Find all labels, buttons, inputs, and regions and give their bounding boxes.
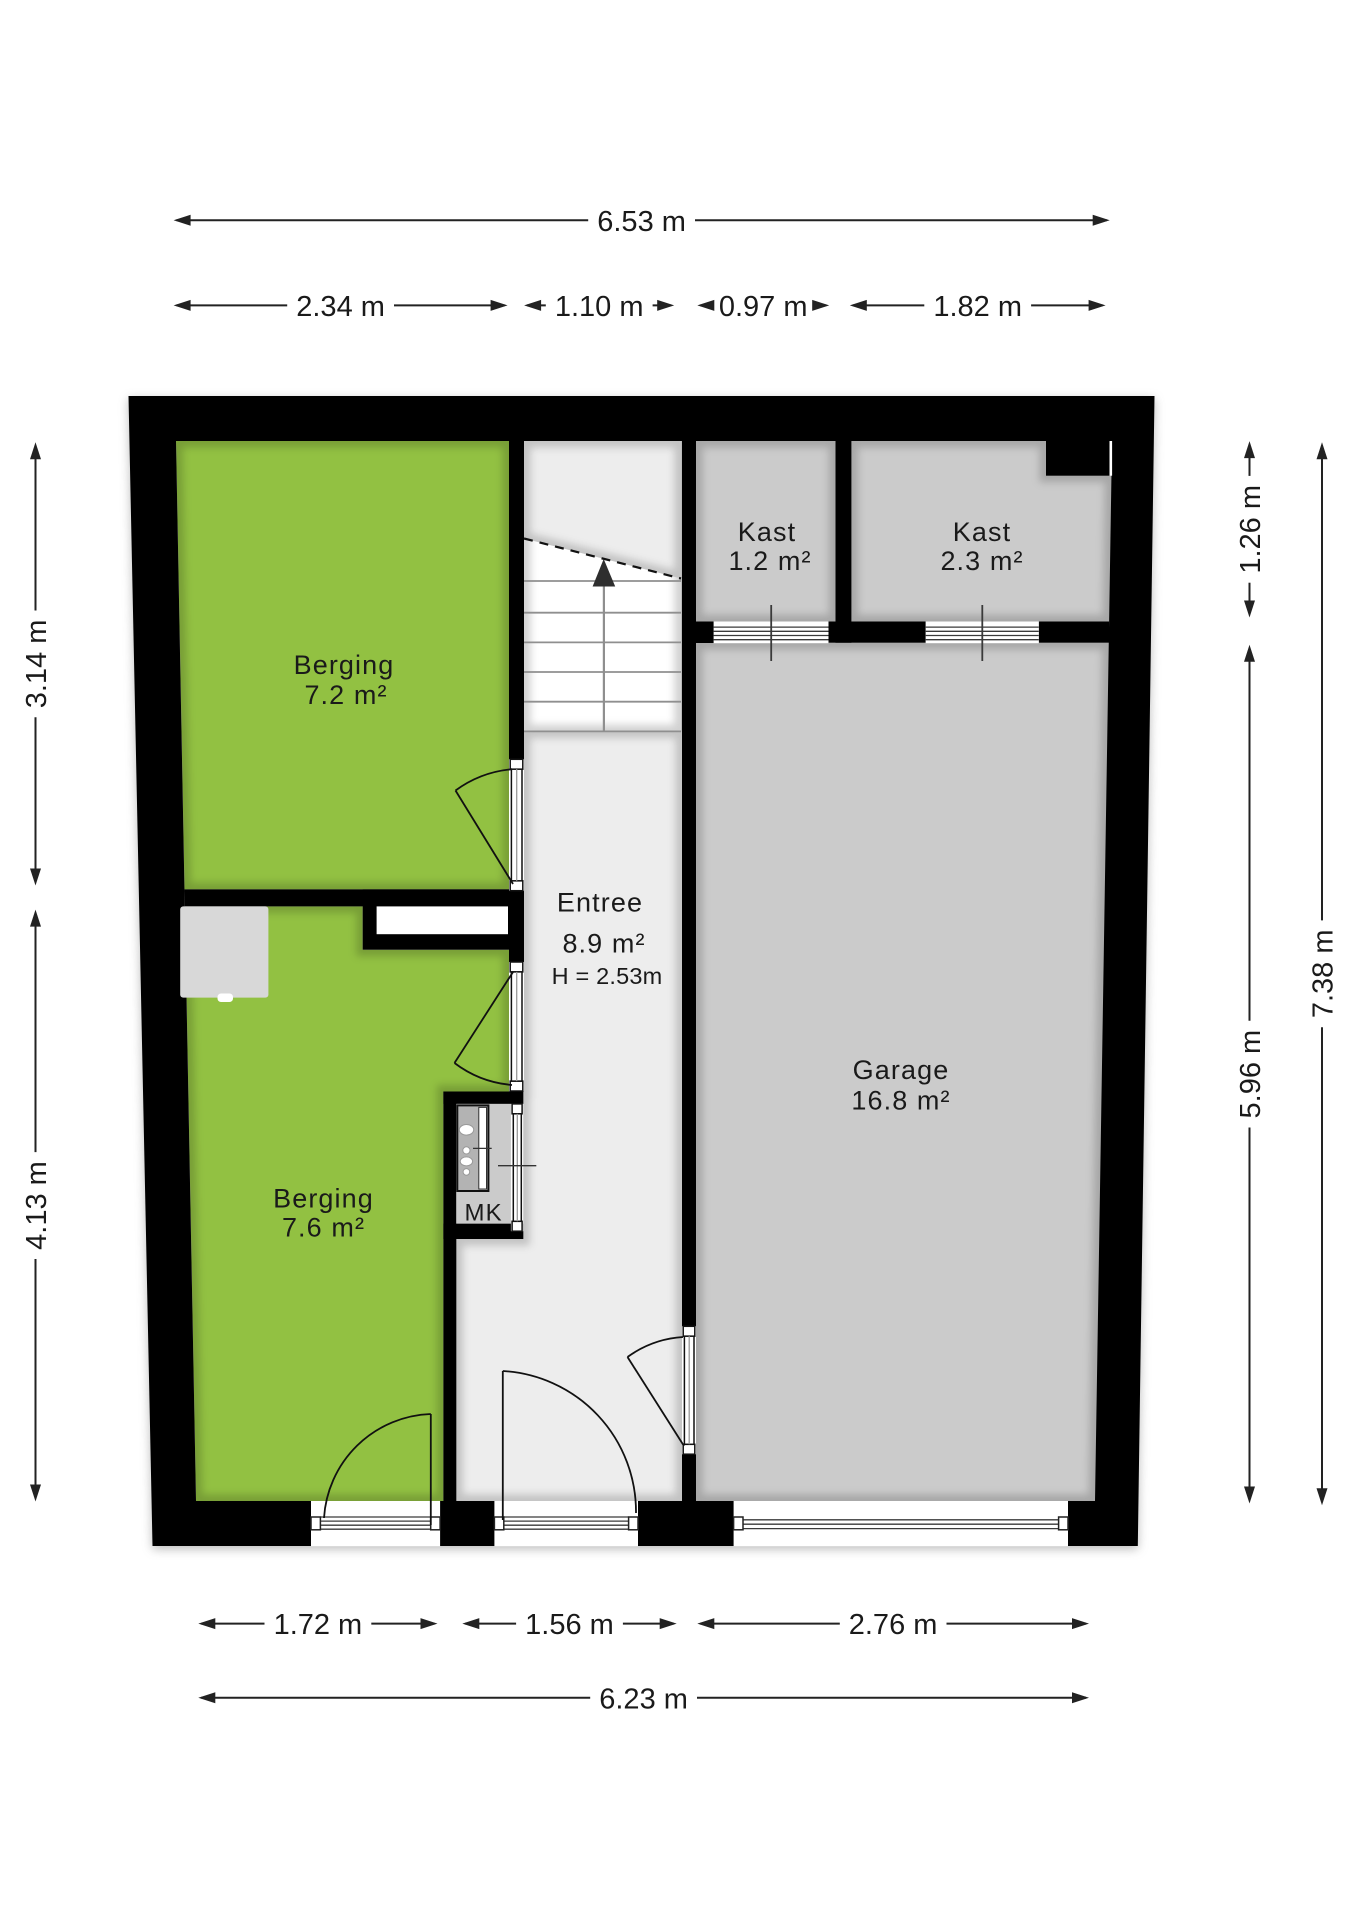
svg-text:7.2 m²: 7.2 m²: [304, 680, 387, 710]
svg-text:7.38 m: 7.38 m: [1308, 929, 1340, 1018]
svg-text:2.76 m: 2.76 m: [849, 1609, 938, 1641]
svg-text:1.82 m: 1.82 m: [933, 291, 1022, 323]
svg-text:2.3 m²: 2.3 m²: [940, 546, 1023, 576]
svg-text:7.6 m²: 7.6 m²: [282, 1213, 365, 1243]
svg-text:1.2 m²: 1.2 m²: [728, 546, 811, 576]
svg-text:16.8 m²: 16.8 m²: [851, 1086, 950, 1116]
svg-text:4.13 m: 4.13 m: [21, 1161, 53, 1250]
svg-text:3.14 m: 3.14 m: [21, 620, 53, 709]
svg-text:1.72 m: 1.72 m: [274, 1609, 363, 1641]
svg-text:1.10 m: 1.10 m: [555, 291, 644, 323]
svg-text:8.9 m²: 8.9 m²: [562, 929, 645, 959]
svg-text:Kast: Kast: [738, 517, 796, 547]
svg-text:5.96 m: 5.96 m: [1235, 1030, 1267, 1119]
svg-text:0.97 m: 0.97 m: [719, 291, 808, 323]
svg-text:Entree: Entree: [557, 887, 643, 917]
svg-text:1.26 m: 1.26 m: [1235, 485, 1267, 574]
svg-text:Berging: Berging: [294, 650, 395, 680]
svg-text:6.53 m: 6.53 m: [597, 206, 686, 238]
svg-text:Berging: Berging: [273, 1184, 374, 1214]
svg-text:Kast: Kast: [953, 517, 1011, 547]
svg-text:1.56 m: 1.56 m: [525, 1609, 614, 1641]
svg-text:2.34 m: 2.34 m: [296, 291, 385, 323]
svg-text:Garage: Garage: [853, 1055, 950, 1085]
svg-text:MK: MK: [464, 1200, 502, 1227]
svg-text:6.23 m: 6.23 m: [599, 1683, 688, 1715]
svg-text:H = 2.53m: H = 2.53m: [552, 963, 663, 989]
